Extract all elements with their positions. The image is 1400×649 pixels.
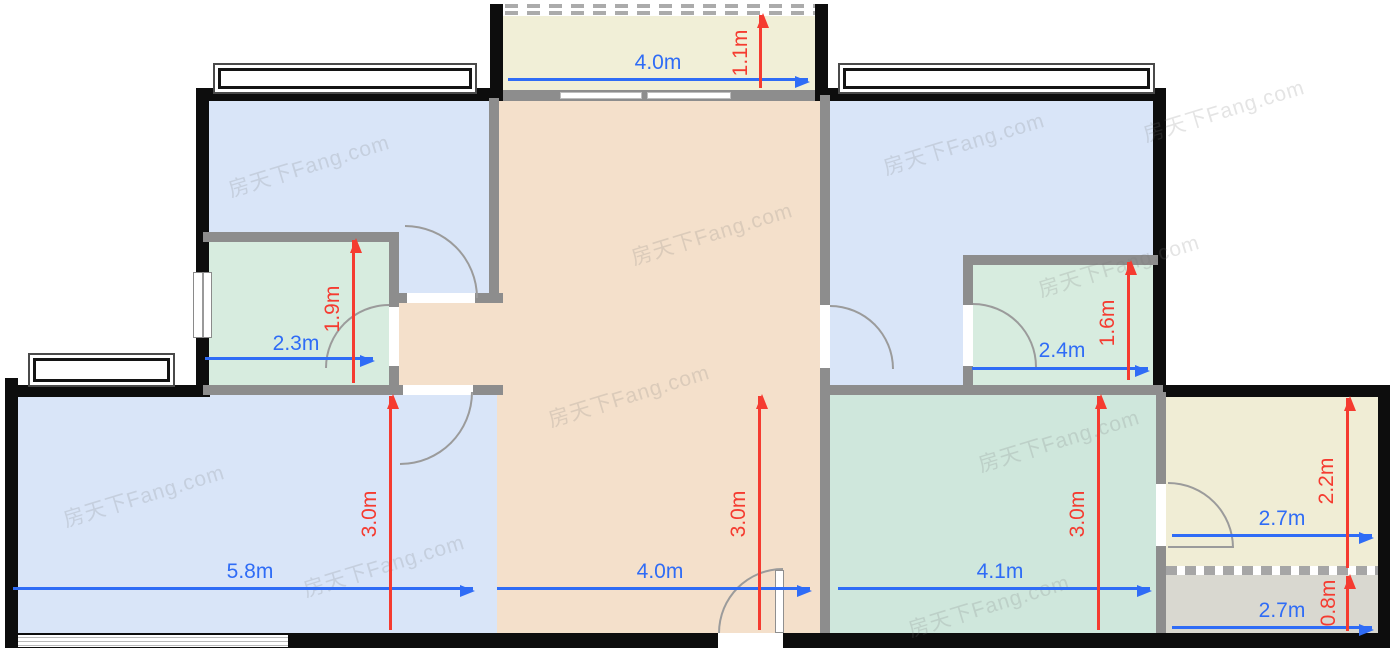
dim-arrow-kitchen-depth xyxy=(1346,398,1349,568)
dim-arrow-balconyBR-depth xyxy=(1346,576,1349,631)
room-center-hall xyxy=(492,88,828,635)
dim-label-roomBL-depth: 3.0m xyxy=(358,484,382,544)
dim-arrow-balcony-top-width xyxy=(508,78,808,81)
window-bottom-left xyxy=(18,635,288,647)
bay-window-top-left xyxy=(213,63,477,94)
balcony-top-dashed-rail-1 xyxy=(505,4,815,8)
wall-left-upper xyxy=(196,95,209,275)
dim-arrow-balconyBR-width xyxy=(1172,626,1372,629)
dim-label-bathL-depth: 1.9m xyxy=(321,279,345,339)
dim-arrow-bathL-depth xyxy=(352,240,355,383)
dim-label-balcony-top-width: 4.0m xyxy=(623,51,693,75)
dim-arrow-balcony-top-depth xyxy=(759,15,762,88)
wall-balcony-right xyxy=(815,4,828,101)
dim-arrow-roomBR-width xyxy=(838,587,1150,590)
dim-arrow-bathR-depth xyxy=(1127,262,1130,380)
door-gap-bathL xyxy=(389,307,399,366)
wall-left-lower xyxy=(5,378,18,648)
dim-arrow-roomBL-width xyxy=(13,587,473,590)
dim-arrow-bathR-width xyxy=(972,367,1148,370)
dim-label-balconyBR-depth: 0.8m xyxy=(1317,573,1341,633)
dim-label-roomBR-width: 4.1m xyxy=(965,560,1035,584)
door-gap-bathR xyxy=(963,305,973,366)
wall-hall-bedroomTR-dn xyxy=(820,368,830,633)
dim-arrow-kitchen-width xyxy=(1172,534,1372,537)
dim-label-balcony-top-depth: 1.1m xyxy=(729,23,753,83)
wall-bedroomTL-bottom-b xyxy=(475,293,503,303)
dim-label-kitchen-width: 2.7m xyxy=(1247,507,1317,531)
bay-window-top-right xyxy=(838,63,1155,94)
wall-kitchen-left-up xyxy=(1156,392,1166,484)
wall-kitchen-left-dn xyxy=(1156,546,1166,633)
dim-label-roomBR-depth: 3.0m xyxy=(1066,484,1090,544)
wall-bottom-b xyxy=(783,633,1166,648)
dim-label-roomC-depth: 3.0m xyxy=(727,484,751,544)
window-glass-line xyxy=(202,273,204,337)
door-leaf-entrance xyxy=(775,570,784,633)
dim-arrow-roomBR-depth xyxy=(1097,396,1100,630)
wall-bathL-top xyxy=(203,232,399,242)
dim-label-bathR-depth: 1.6m xyxy=(1096,293,1120,353)
dim-arrow-roomC-width xyxy=(497,587,810,590)
wall-farright-side xyxy=(1378,385,1390,648)
wall-hall-bedroomTR-up xyxy=(820,95,830,307)
balcony-slider-glass-1 xyxy=(560,92,642,99)
wall-bathR-left-up xyxy=(963,255,973,305)
bay-window-inner xyxy=(843,68,1150,89)
dim-arrow-bathL-width xyxy=(205,357,373,360)
floor-plan: 房天下Fang.com 房天下Fang.com 房天下Fang.com 房天下F… xyxy=(0,0,1400,649)
door-gap-bedroomTR xyxy=(820,305,830,368)
bay-window-bottom-left xyxy=(28,353,175,387)
bay-window-inner xyxy=(33,358,170,382)
wall-bedroomTL-right xyxy=(489,98,499,300)
dim-label-roomC-width: 4.0m xyxy=(625,560,695,584)
dim-label-balconyBR-width: 2.7m xyxy=(1247,599,1317,623)
wall-farright-bottom xyxy=(1163,633,1390,648)
window-bathL-left xyxy=(193,272,212,338)
wall-balcony-left xyxy=(490,4,503,101)
wall-livingL-top-b xyxy=(473,385,503,395)
dim-arrow-roomC-depth xyxy=(758,396,761,630)
dim-label-kitchen-depth: 2.2m xyxy=(1315,451,1339,511)
room-center-hall-extension xyxy=(392,300,502,388)
wall-livingL-top-a xyxy=(203,385,403,395)
balcony-slider-glass-2 xyxy=(647,92,731,99)
dim-arrow-roomBL-depth xyxy=(389,396,392,630)
door-gap-entrance xyxy=(718,633,783,648)
dim-label-bathR-width: 2.4m xyxy=(1027,339,1097,363)
bay-window-inner xyxy=(218,68,472,89)
wall-roomBR-top xyxy=(820,385,1163,395)
dim-label-roomBL-width: 5.8m xyxy=(215,560,285,584)
door-gap-kitchen xyxy=(1156,484,1166,546)
